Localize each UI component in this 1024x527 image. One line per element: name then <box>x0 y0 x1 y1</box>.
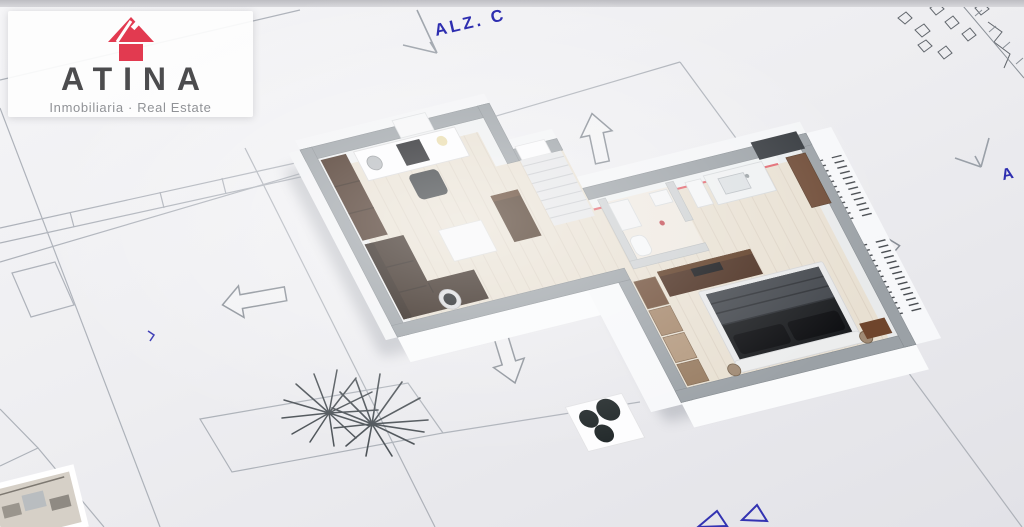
blueprint-scene: ATINA Inmobiliaria · Real Estate ALZ. C … <box>0 0 1024 527</box>
vegetation-scribbles <box>898 0 1024 78</box>
direction-arrow-left <box>220 278 289 321</box>
house-icon <box>107 17 155 61</box>
direction-arrow-up <box>576 110 618 166</box>
paper-edge-strip <box>0 0 1024 7</box>
leader-arrow-right-edge <box>955 138 989 167</box>
palm-tree-left <box>282 370 378 446</box>
apartment-plan <box>283 21 954 485</box>
brand-tagline: Inmobiliaria · Real Estate <box>49 100 211 115</box>
leader-arrow-alz <box>403 10 437 53</box>
palm-tree-right <box>332 374 428 456</box>
corner-photo-thumbnail <box>0 464 89 527</box>
brand-name: ATINA <box>61 63 211 95</box>
stone-tray <box>565 393 644 451</box>
logo-card: ATINA Inmobiliaria · Real Estate <box>8 11 253 117</box>
